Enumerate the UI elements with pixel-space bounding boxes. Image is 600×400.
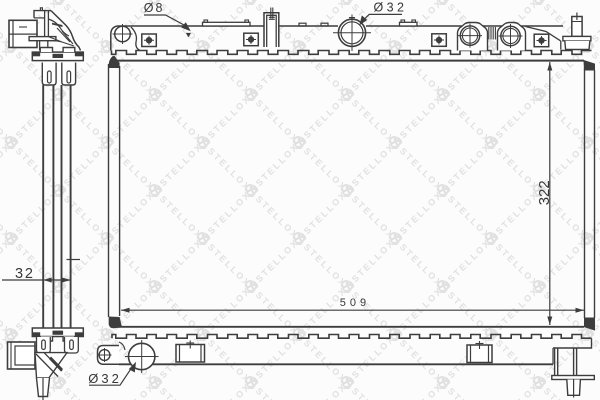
svg-text:Ø8: Ø8 xyxy=(144,1,165,15)
svg-text:32: 32 xyxy=(15,266,35,282)
svg-text:Ø32: Ø32 xyxy=(374,1,408,15)
svg-text:509: 509 xyxy=(340,297,370,309)
svg-text:Ø32: Ø32 xyxy=(88,371,122,386)
svg-text:322: 322 xyxy=(536,180,553,205)
